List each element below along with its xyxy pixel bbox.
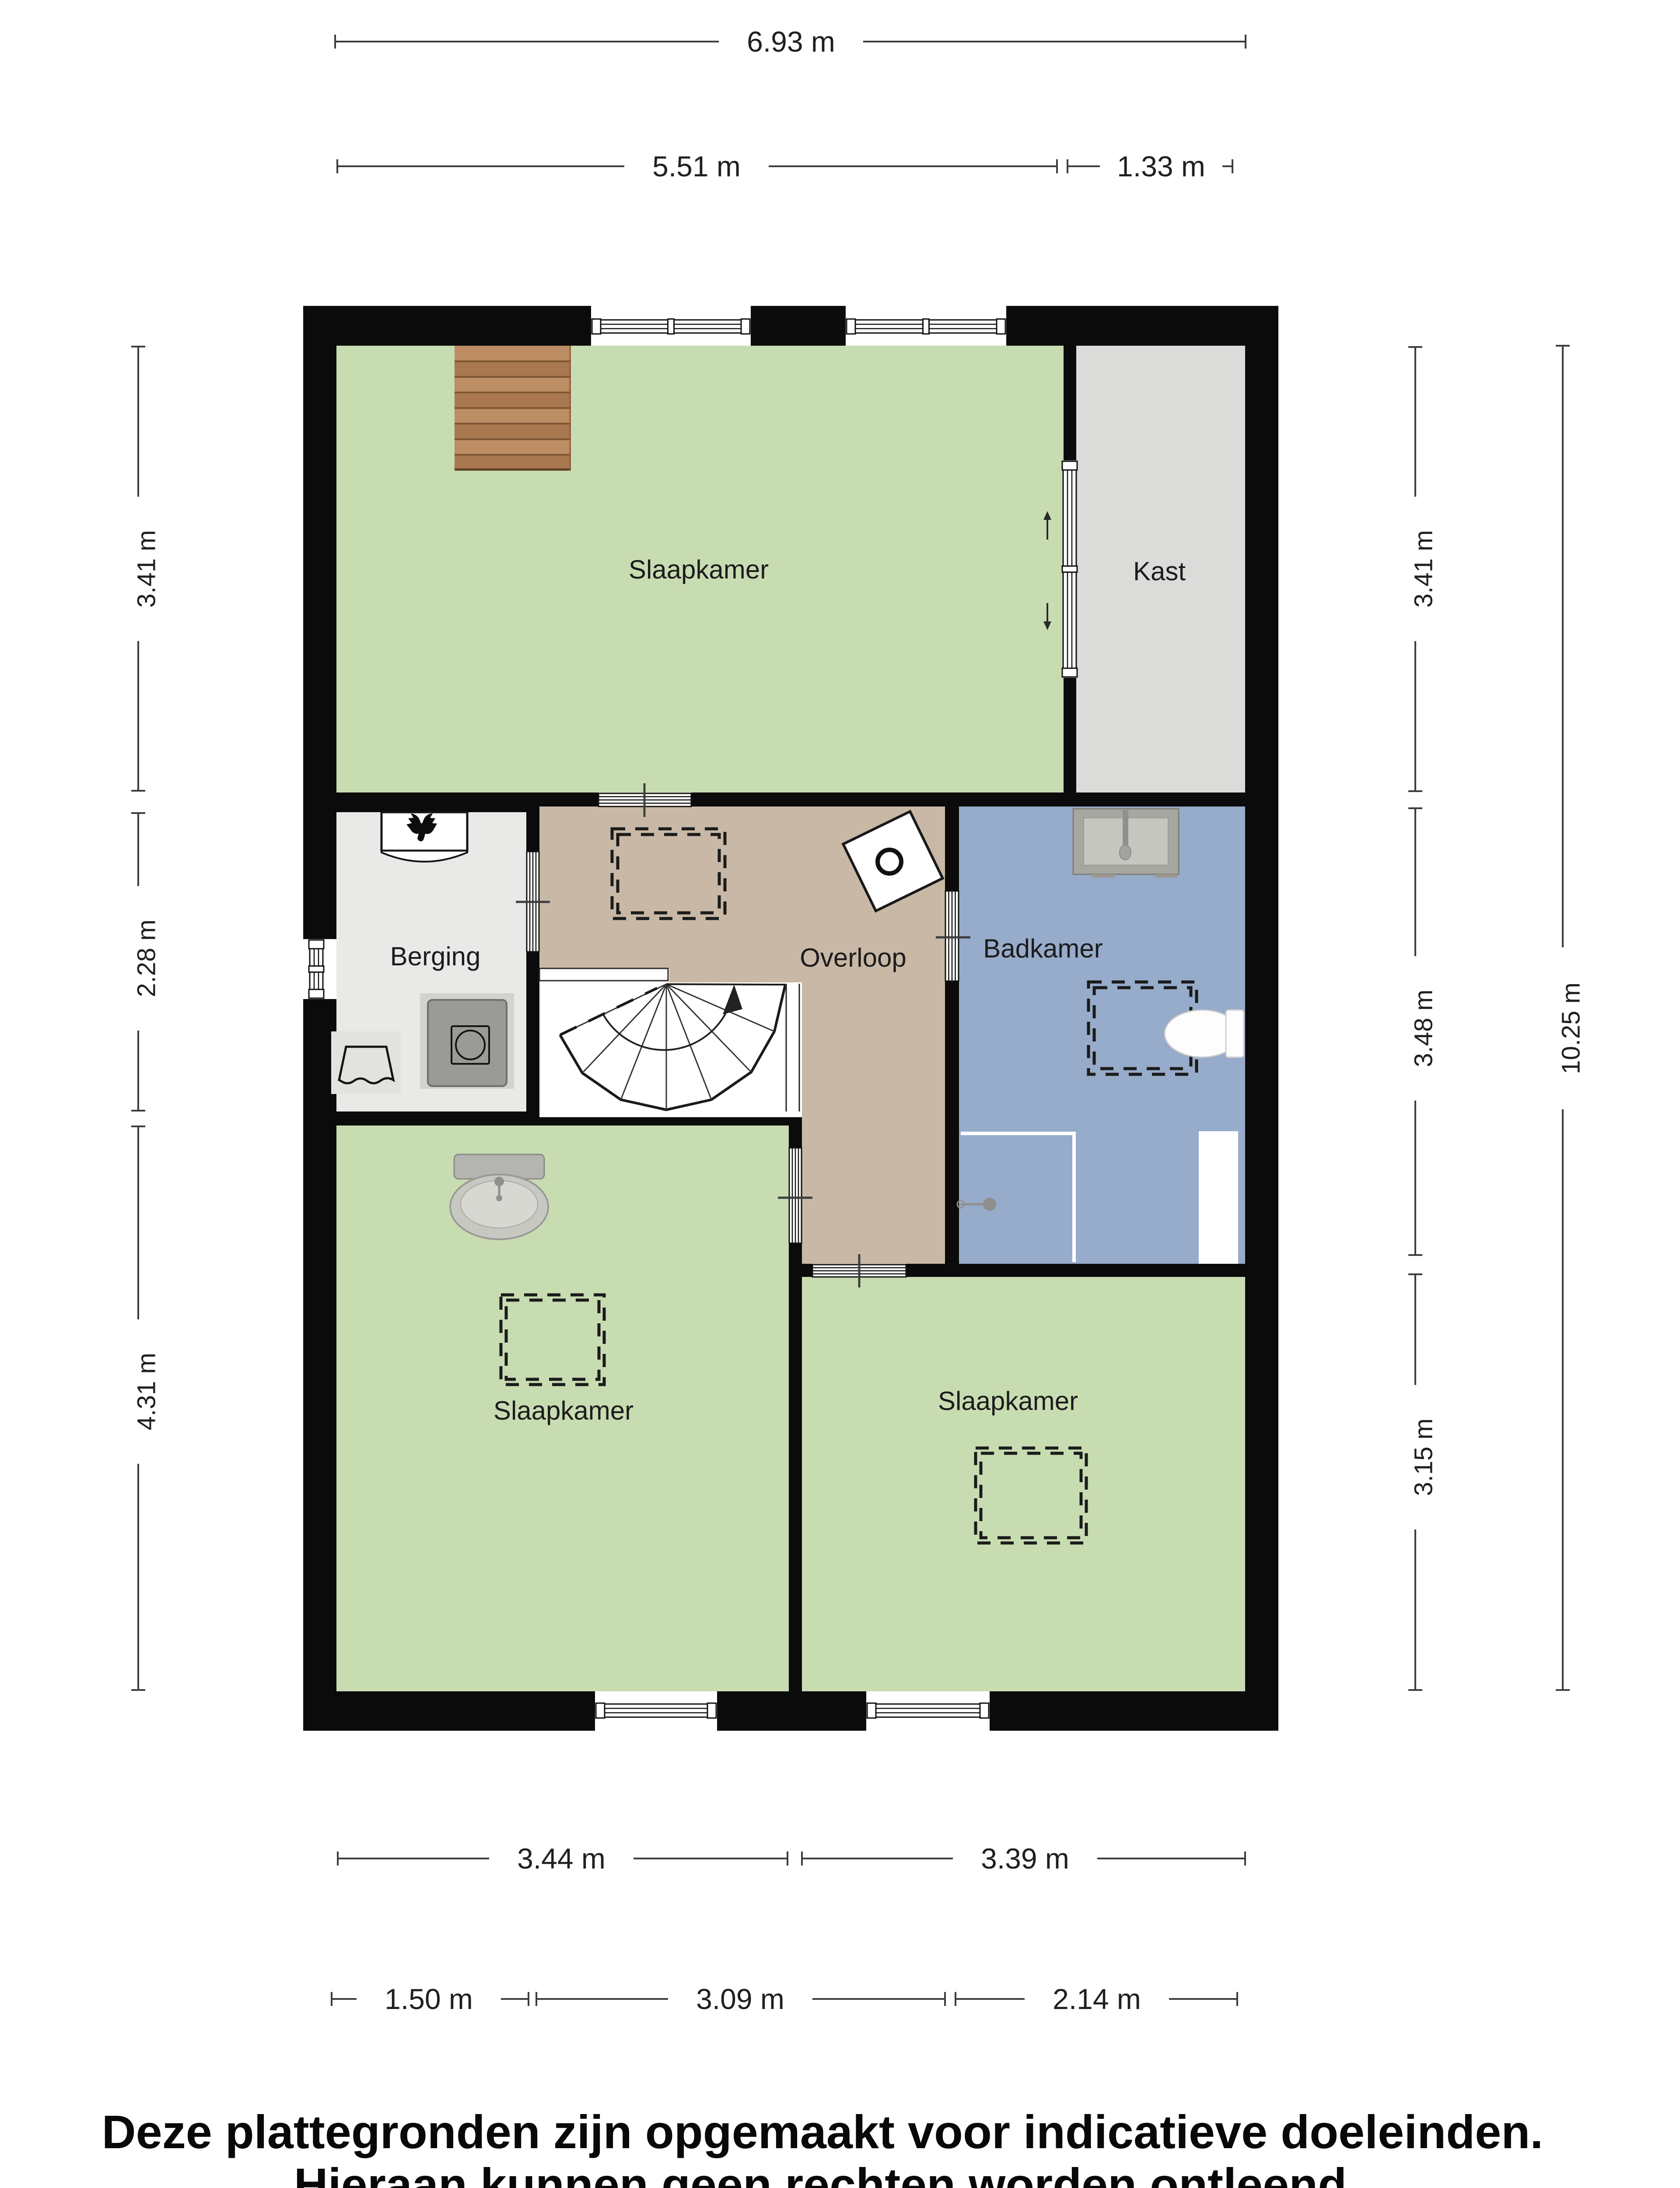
svg-text:4.31 m: 4.31 m	[132, 1353, 161, 1430]
svg-text:3.15 m: 3.15 m	[1409, 1418, 1438, 1496]
svg-text:5.51 m: 5.51 m	[652, 150, 741, 182]
svg-text:Berging: Berging	[390, 942, 481, 971]
svg-text:3.44 m: 3.44 m	[517, 1842, 605, 1875]
svg-text:Slaapkamer: Slaapkamer	[629, 555, 769, 584]
svg-text:3.48 m: 3.48 m	[1409, 989, 1438, 1067]
svg-text:2.14 m: 2.14 m	[1053, 1983, 1141, 2015]
svg-text:Slaapkamer: Slaapkamer	[493, 1396, 633, 1425]
svg-text:Kast: Kast	[1133, 557, 1186, 586]
svg-text:2.28 m: 2.28 m	[132, 919, 161, 997]
svg-text:Slaapkamer: Slaapkamer	[938, 1386, 1078, 1416]
svg-text:3.41 m: 3.41 m	[132, 530, 161, 607]
svg-text:3.39 m: 3.39 m	[981, 1842, 1069, 1875]
svg-text:Deze plattegronden zijn opgema: Deze plattegronden zijn opgemaakt voor i…	[102, 2105, 1543, 2158]
svg-text:Overloop: Overloop	[800, 943, 906, 972]
svg-text:10.25 m: 10.25 m	[1557, 982, 1585, 1074]
svg-text:Badkamer: Badkamer	[983, 934, 1102, 963]
svg-text:3.41 m: 3.41 m	[1409, 530, 1438, 607]
svg-text:3.09 m: 3.09 m	[696, 1983, 784, 2015]
svg-text:1.33 m: 1.33 m	[1117, 150, 1205, 182]
svg-text:1.50 m: 1.50 m	[385, 1983, 473, 2015]
svg-text:Hieraan kunnen geen rechten wo: Hieraan kunnen geen rechten worden ontle…	[294, 2158, 1360, 2188]
svg-text:6.93 m: 6.93 m	[747, 25, 835, 58]
